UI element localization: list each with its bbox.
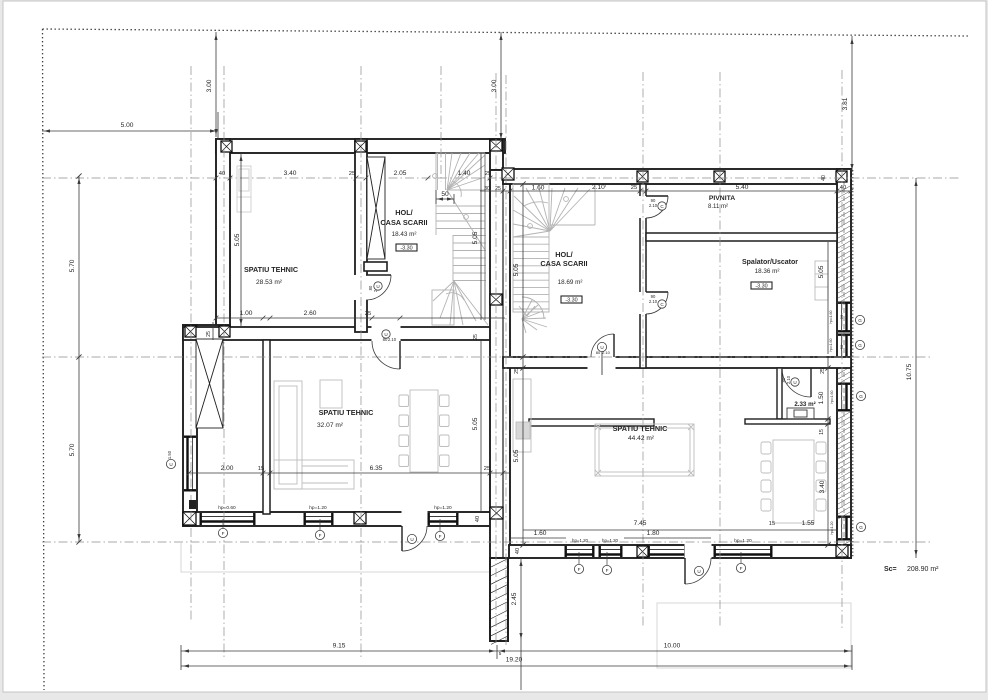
svg-text:25: 25 (349, 171, 355, 177)
svg-text:1.60: 1.60 (534, 530, 547, 537)
svg-text:3.40: 3.40 (284, 170, 297, 177)
svg-text:44.42 m²: 44.42 m² (628, 435, 655, 442)
svg-text:hp=1.20: hp=1.20 (309, 505, 327, 511)
svg-text:50: 50 (839, 344, 844, 349)
svg-text:40: 40 (821, 175, 827, 181)
svg-text:U: U (384, 332, 387, 337)
svg-text:F: F (606, 568, 609, 573)
svg-text:5.40: 5.40 (736, 184, 749, 191)
svg-text:PIVNITA: PIVNITA (709, 195, 735, 202)
svg-text:15: 15 (258, 466, 264, 472)
svg-text:U: U (600, 345, 603, 350)
svg-text:208.90 m²: 208.90 m² (907, 566, 939, 573)
svg-text:Spalator/Uscator: Spalator/Uscator (742, 259, 798, 266)
svg-text:hp=1.20: hp=1.20 (572, 538, 589, 543)
svg-text:-3.30: -3.30 (400, 246, 412, 252)
svg-text:10.75: 10.75 (906, 363, 913, 380)
svg-text:25: 25 (473, 334, 479, 340)
svg-text:2.10: 2.10 (649, 203, 658, 208)
svg-text:30: 30 (484, 186, 490, 192)
svg-text:5.05: 5.05 (818, 265, 825, 278)
svg-text:2.05: 2.05 (394, 170, 407, 177)
svg-text:28.53 m²: 28.53 m² (256, 279, 283, 286)
svg-text:U: U (410, 537, 413, 542)
svg-text:50: 50 (441, 191, 449, 198)
svg-text:25: 25 (365, 311, 371, 317)
svg-text:8.11 m²: 8.11 m² (708, 204, 728, 210)
svg-text:SPATIU TEHNIC: SPATIU TEHNIC (244, 265, 298, 274)
svg-text:5.05: 5.05 (513, 263, 520, 276)
svg-text:-3.30: -3.30 (565, 298, 577, 304)
svg-text:5.05: 5.05 (472, 417, 479, 430)
svg-text:40: 40 (475, 516, 481, 522)
svg-text:Sc=: Sc= (884, 566, 897, 573)
svg-text:32.07 m²: 32.07 m² (317, 422, 344, 429)
svg-text:HOL/: HOL/ (395, 208, 412, 217)
svg-text:18.43 m²: 18.43 m² (392, 231, 417, 238)
svg-text:hp=1.20: hp=1.20 (434, 505, 452, 511)
svg-text:25: 25 (820, 368, 826, 374)
svg-text:2.10: 2.10 (786, 375, 791, 384)
svg-text:F: F (222, 531, 225, 536)
svg-text:hp=1.20: hp=1.20 (602, 538, 619, 543)
svg-text:7.45: 7.45 (634, 520, 647, 527)
svg-text:-3.30: -3.30 (755, 284, 767, 290)
svg-text:U: U (169, 462, 172, 467)
svg-text:hp=1.20: hp=1.20 (734, 538, 752, 544)
svg-text:hp=1.60: hp=1.60 (829, 310, 833, 323)
svg-text:25: 25 (514, 368, 520, 374)
svg-text:9.15: 9.15 (333, 643, 346, 650)
svg-text:G: G (858, 318, 862, 323)
svg-text:F: F (578, 567, 581, 572)
svg-text:10.00: 10.00 (664, 643, 681, 650)
svg-text:2.10ⁱ: 2.10ⁱ (592, 183, 606, 191)
svg-text:hp=1.20: hp=1.20 (830, 521, 834, 534)
svg-text:3.81: 3.81 (842, 97, 849, 110)
svg-text:25: 25 (484, 466, 490, 472)
svg-text:2.60: 2.60 (304, 310, 317, 317)
svg-text:25: 25 (206, 331, 212, 337)
svg-text:2.00: 2.00 (221, 465, 234, 472)
svg-text:1.60: 1.60 (532, 185, 545, 192)
svg-text:25: 25 (495, 186, 501, 192)
svg-text:hp=1.60: hp=1.60 (829, 338, 833, 351)
svg-text:5: 5 (499, 651, 502, 656)
svg-text:18.69 m²: 18.69 m² (558, 279, 583, 286)
svg-text:2.33 m²: 2.33 m² (794, 401, 815, 408)
svg-text:CASA SCARII: CASA SCARII (380, 218, 427, 227)
svg-text:40: 40 (840, 185, 846, 191)
svg-text:25: 25 (631, 185, 637, 191)
svg-text:2.45: 2.45 (511, 592, 518, 605)
svg-text:U: U (376, 284, 379, 289)
svg-text:1.00: 1.00 (240, 310, 253, 317)
svg-text:1.50: 1.50 (818, 391, 825, 404)
svg-text:5.70: 5.70 (69, 443, 76, 456)
svg-text:15: 15 (769, 521, 775, 527)
svg-text:40: 40 (219, 171, 225, 177)
svg-text:SPATIU TEHNIC: SPATIU TEHNIC (319, 408, 375, 417)
svg-text:5.05: 5.05 (472, 231, 479, 244)
svg-text:G: G (859, 394, 863, 399)
svg-text:U: U (697, 569, 700, 574)
svg-text:25: 25 (485, 171, 491, 177)
svg-text:CASA SCARII: CASA SCARII (540, 259, 587, 268)
svg-text:SPATIU TEHNIC: SPATIU TEHNIC (613, 424, 669, 433)
svg-text:5.05: 5.05 (513, 449, 520, 462)
svg-text:hp=1.60: hp=1.60 (830, 390, 834, 403)
svg-text:G: G (859, 525, 863, 530)
svg-text:G: G (858, 343, 862, 348)
svg-text:15: 15 (819, 429, 825, 435)
svg-text:1.50: 1.50 (167, 450, 172, 459)
svg-text:40: 40 (515, 548, 521, 554)
svg-text:5.05: 5.05 (234, 233, 241, 246)
svg-text:2.10: 2.10 (649, 299, 658, 304)
svg-text:1.80: 1.80 (647, 530, 660, 537)
svg-text:F: F (439, 534, 442, 539)
svg-text:hp=0.60: hp=0.60 (218, 505, 236, 511)
svg-text:5.70: 5.70 (69, 259, 76, 272)
svg-text:3.40: 3.40 (819, 480, 826, 493)
svg-text:5.00: 5.00 (121, 122, 134, 129)
svg-text:HOL/: HOL/ (555, 250, 572, 259)
svg-text:1.40: 1.40 (458, 170, 471, 177)
svg-text:18.36 m²: 18.36 m² (755, 268, 780, 275)
svg-text:1.55: 1.55 (802, 520, 815, 527)
svg-text:19.20: 19.20 (506, 657, 523, 664)
svg-text:6.35: 6.35 (370, 465, 383, 472)
svg-text:2.10: 2.10 (388, 337, 397, 342)
svg-text:3.00: 3.00 (206, 79, 213, 92)
svg-text:F: F (319, 533, 322, 538)
svg-text:U: U (793, 380, 796, 385)
svg-text:3.00: 3.00 (491, 79, 498, 92)
svg-text:F: F (740, 566, 743, 571)
svg-text:50: 50 (839, 314, 844, 319)
